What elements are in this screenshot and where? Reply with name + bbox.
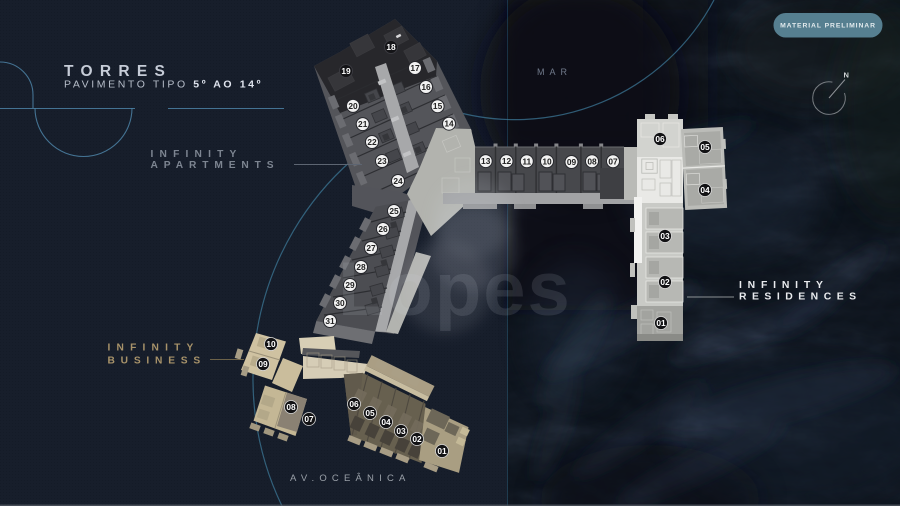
svg-text:01: 01: [437, 446, 447, 456]
svg-text:04: 04: [700, 185, 710, 195]
svg-text:PAVIMENTO TIPO 5º AO 14º: PAVIMENTO TIPO 5º AO 14º: [64, 78, 263, 90]
svg-text:AV.OCEÂNICA: AV.OCEÂNICA: [290, 473, 411, 484]
svg-text:09: 09: [567, 157, 577, 167]
svg-text:03: 03: [396, 426, 406, 436]
svg-text:26: 26: [378, 224, 388, 234]
svg-text:08: 08: [587, 156, 597, 166]
svg-text:10: 10: [542, 156, 552, 166]
svg-text:02: 02: [660, 277, 670, 287]
svg-text:MAR: MAR: [537, 67, 572, 77]
svg-text:Lopes: Lopes: [338, 247, 572, 332]
svg-text:29: 29: [345, 280, 355, 290]
svg-text:25: 25: [389, 206, 399, 216]
svg-text:19: 19: [341, 66, 351, 76]
svg-text:MATERIAL PRELIMINAR: MATERIAL PRELIMINAR: [780, 23, 876, 30]
svg-text:07: 07: [304, 414, 314, 424]
svg-text:16: 16: [421, 82, 431, 92]
svg-text:04: 04: [381, 417, 391, 427]
svg-text:13: 13: [481, 156, 491, 166]
svg-text:N: N: [844, 71, 849, 80]
svg-text:20: 20: [348, 101, 358, 111]
svg-text:21: 21: [358, 119, 368, 129]
svg-text:09: 09: [258, 359, 268, 369]
svg-text:11: 11: [522, 156, 531, 166]
svg-text:05: 05: [700, 142, 710, 152]
svg-text:30: 30: [335, 298, 345, 308]
svg-text:05: 05: [365, 408, 375, 418]
svg-text:10: 10: [266, 339, 276, 349]
svg-text:INFINITY: INFINITY: [108, 343, 200, 354]
svg-text:07: 07: [608, 156, 618, 166]
svg-text:RESIDENCES: RESIDENCES: [739, 292, 862, 303]
svg-text:22: 22: [367, 137, 377, 147]
svg-text:03: 03: [660, 231, 670, 241]
svg-text:28: 28: [356, 262, 366, 272]
svg-text:01: 01: [656, 318, 666, 328]
svg-text:12: 12: [502, 156, 512, 166]
svg-text:INFINITY: INFINITY: [151, 149, 243, 160]
svg-text:31: 31: [325, 316, 335, 326]
svg-text:23: 23: [377, 156, 387, 166]
svg-text:18: 18: [386, 42, 396, 52]
svg-text:06: 06: [349, 399, 359, 409]
svg-text:06: 06: [655, 134, 665, 144]
svg-text:BUSINESS: BUSINESS: [108, 356, 206, 367]
svg-text:08: 08: [286, 402, 296, 412]
svg-text:02: 02: [412, 434, 422, 444]
svg-text:APARTMENTS: APARTMENTS: [151, 160, 280, 171]
svg-text:17: 17: [410, 63, 420, 73]
svg-text:27: 27: [366, 243, 376, 253]
svg-text:14: 14: [444, 119, 454, 129]
svg-text:15: 15: [433, 101, 443, 111]
svg-text:INFINITY: INFINITY: [739, 280, 829, 291]
svg-text:24: 24: [393, 176, 403, 186]
